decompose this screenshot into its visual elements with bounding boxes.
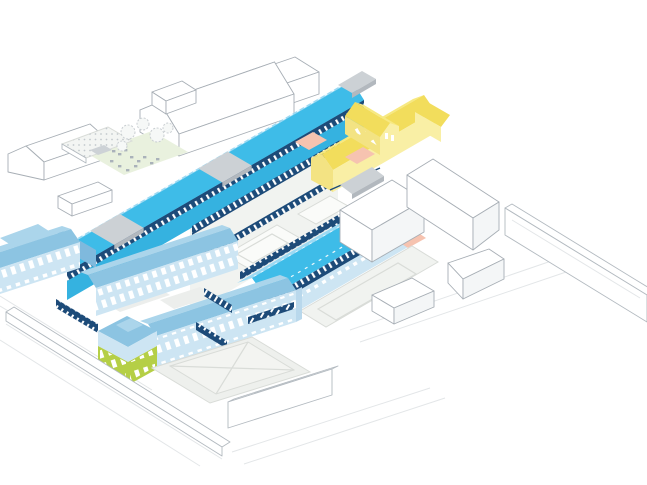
chapel-window <box>385 133 388 139</box>
context-building-f2 <box>58 182 112 216</box>
chapel-window <box>391 135 394 141</box>
wall-line <box>512 220 640 298</box>
wing-end-shade <box>296 287 302 322</box>
scene-svg <box>0 0 647 485</box>
tree-icon <box>163 123 173 133</box>
wall-face <box>505 208 647 322</box>
tree-icon <box>150 128 164 142</box>
wall-top <box>505 204 647 295</box>
east-boundary-wall <box>505 204 647 322</box>
tree-icon <box>117 141 127 151</box>
tree-icon <box>121 125 135 139</box>
context-box-c <box>448 249 504 299</box>
tree-icon <box>137 118 149 130</box>
fence-bar-glazing <box>56 299 98 333</box>
context-east <box>340 159 647 324</box>
